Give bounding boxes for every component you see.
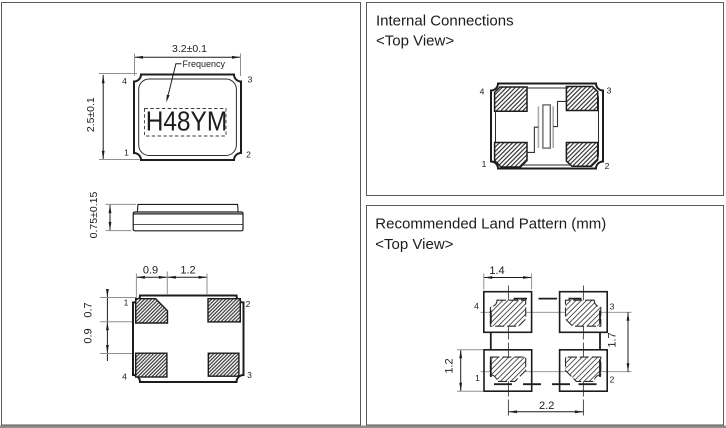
svg-text:2: 2 bbox=[246, 299, 251, 309]
svg-text:3: 3 bbox=[247, 370, 252, 380]
svg-text:2: 2 bbox=[246, 150, 251, 160]
svg-text:Recommended Land Pattern (mm): Recommended Land Pattern (mm) bbox=[375, 216, 606, 233]
svg-text:1.7: 1.7 bbox=[607, 332, 619, 347]
svg-text:3.2±0.1: 3.2±0.1 bbox=[172, 43, 207, 55]
svg-text:3: 3 bbox=[610, 302, 615, 312]
svg-text:1.2: 1.2 bbox=[180, 265, 195, 277]
svg-text:3: 3 bbox=[248, 75, 253, 85]
svg-text:4: 4 bbox=[122, 76, 127, 86]
svg-text:<Top View>: <Top View> bbox=[375, 236, 453, 253]
svg-text:0.9: 0.9 bbox=[83, 328, 95, 343]
svg-text:<Top View>: <Top View> bbox=[376, 33, 454, 50]
svg-text:2: 2 bbox=[605, 161, 610, 171]
svg-text:4: 4 bbox=[480, 87, 485, 97]
svg-text:0.9: 0.9 bbox=[143, 265, 158, 277]
svg-text:0.7: 0.7 bbox=[83, 302, 95, 317]
svg-text:0.75±0.15: 0.75±0.15 bbox=[88, 192, 100, 239]
svg-text:1: 1 bbox=[124, 297, 129, 307]
svg-text:1: 1 bbox=[124, 148, 129, 158]
svg-text:Internal Connections: Internal Connections bbox=[376, 13, 514, 30]
svg-text:4: 4 bbox=[122, 372, 127, 382]
svg-text:2: 2 bbox=[610, 375, 615, 385]
svg-text:2.2: 2.2 bbox=[539, 400, 554, 412]
svg-text:2.5±0.1: 2.5±0.1 bbox=[85, 97, 97, 132]
svg-text:H48YM: H48YM bbox=[146, 106, 228, 137]
svg-text:1: 1 bbox=[475, 373, 480, 383]
svg-text:1.4: 1.4 bbox=[489, 265, 504, 277]
svg-text:4: 4 bbox=[474, 301, 479, 311]
svg-text:Frequency: Frequency bbox=[183, 59, 226, 69]
svg-text:1.2: 1.2 bbox=[444, 358, 456, 373]
svg-text:1: 1 bbox=[482, 159, 487, 169]
svg-text:3: 3 bbox=[607, 86, 612, 96]
